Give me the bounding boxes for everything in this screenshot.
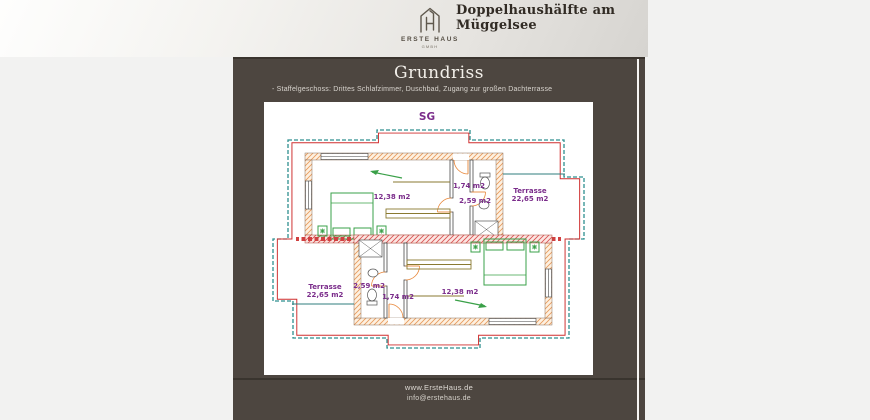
footer-email: info@erstehaus.de	[233, 395, 645, 402]
label-terrace-bottom: Terrasse	[308, 283, 342, 291]
slide-border-line	[637, 59, 639, 420]
slide-subtitle: - Staffelgeschoss: Drittes Schlafzimmer,…	[272, 86, 629, 93]
label-hall-top: 1,74 m2	[453, 182, 485, 190]
label-bath-top: 2,59 m2	[459, 197, 491, 205]
header-photo: ERSTE HAUS GMBH Doppelhaushälfte am Mügg…	[0, 0, 648, 57]
brand-name: ERSTE HAUS	[394, 36, 466, 43]
footer-website: www.ErsteHaus.de	[233, 383, 645, 392]
footer-divider	[233, 378, 645, 380]
label-hall-bottom: 1,74 m2	[382, 293, 414, 301]
label-terrace-area-bottom: 22,65 m2	[307, 291, 344, 299]
floorplan-svg: SG 12,38 m2 1,74 m2 2,59 m2 Terrasse 22,…	[264, 102, 593, 375]
label-terrace-top: Terrasse	[513, 187, 547, 195]
label-bath-bottom: 2,59 m2	[353, 282, 385, 290]
level-label: SG	[419, 111, 435, 123]
slide-panel: Grundriss - Staffelgeschoss: Drittes Sch…	[233, 57, 645, 420]
floorplan-image: SG 12,38 m2 1,74 m2 2,59 m2 Terrasse 22,…	[264, 102, 593, 375]
label-bedroom-top: 12,38 m2	[374, 193, 411, 201]
label-bedroom-bottom: 12,38 m2	[442, 288, 479, 296]
page: ERSTE HAUS GMBH Doppelhaushälfte am Mügg…	[0, 0, 870, 420]
house-logo-icon	[417, 5, 443, 35]
label-terrace-area-top: 22,65 m2	[512, 195, 549, 203]
brand-legal: GMBH	[394, 44, 466, 49]
slide-heading: Grundriss	[233, 59, 645, 83]
page-title: Doppelhaushälfte am Müggelsee	[456, 3, 648, 33]
